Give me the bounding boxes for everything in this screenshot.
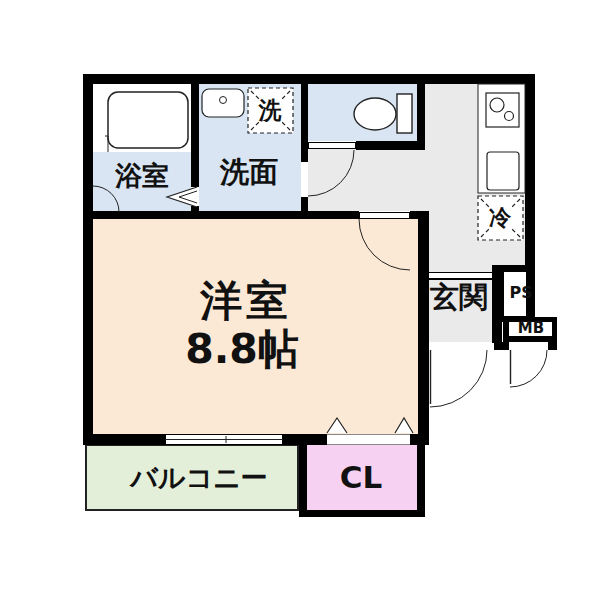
- bathtub-icon: [108, 92, 188, 148]
- fixtures-layer: [0, 0, 602, 614]
- entrance-label: 玄関: [430, 282, 488, 312]
- washroom-label: 洗面: [220, 157, 278, 187]
- washer-label: 洗: [259, 98, 282, 122]
- refrigerator-label: 冷: [489, 206, 511, 229]
- meter-box-label: MB: [518, 321, 544, 337]
- main-room-door-arc: [359, 219, 410, 270]
- closet-label: CL: [340, 461, 383, 494]
- bath-folding-door-icon: [167, 187, 197, 207]
- closet-fold-door-left: [327, 418, 347, 433]
- closet-fold-door-right: [395, 418, 413, 433]
- main-room-label: 洋室: [200, 279, 292, 323]
- balcony-label: バルコニー: [130, 464, 268, 492]
- toilet-door-arc: [308, 150, 354, 196]
- bathroom-label: 浴室: [115, 162, 169, 190]
- window-sash-lines: [165, 436, 283, 443]
- meter-box-door-arc: [510, 350, 547, 387]
- bathtub-step-line: [105, 136, 108, 152]
- floor-plan: 浴室 洗面 洗 洋室 8.8帖 玄関 冷 バルコニー CL PS MB: [0, 0, 602, 614]
- toilet-bowl-icon: [354, 98, 396, 130]
- main-room-size-label: 8.8帖: [185, 328, 299, 371]
- entrance-door-arc: [430, 350, 487, 407]
- toilet-tank: [397, 94, 412, 133]
- pipe-space-label: PS: [509, 283, 520, 302]
